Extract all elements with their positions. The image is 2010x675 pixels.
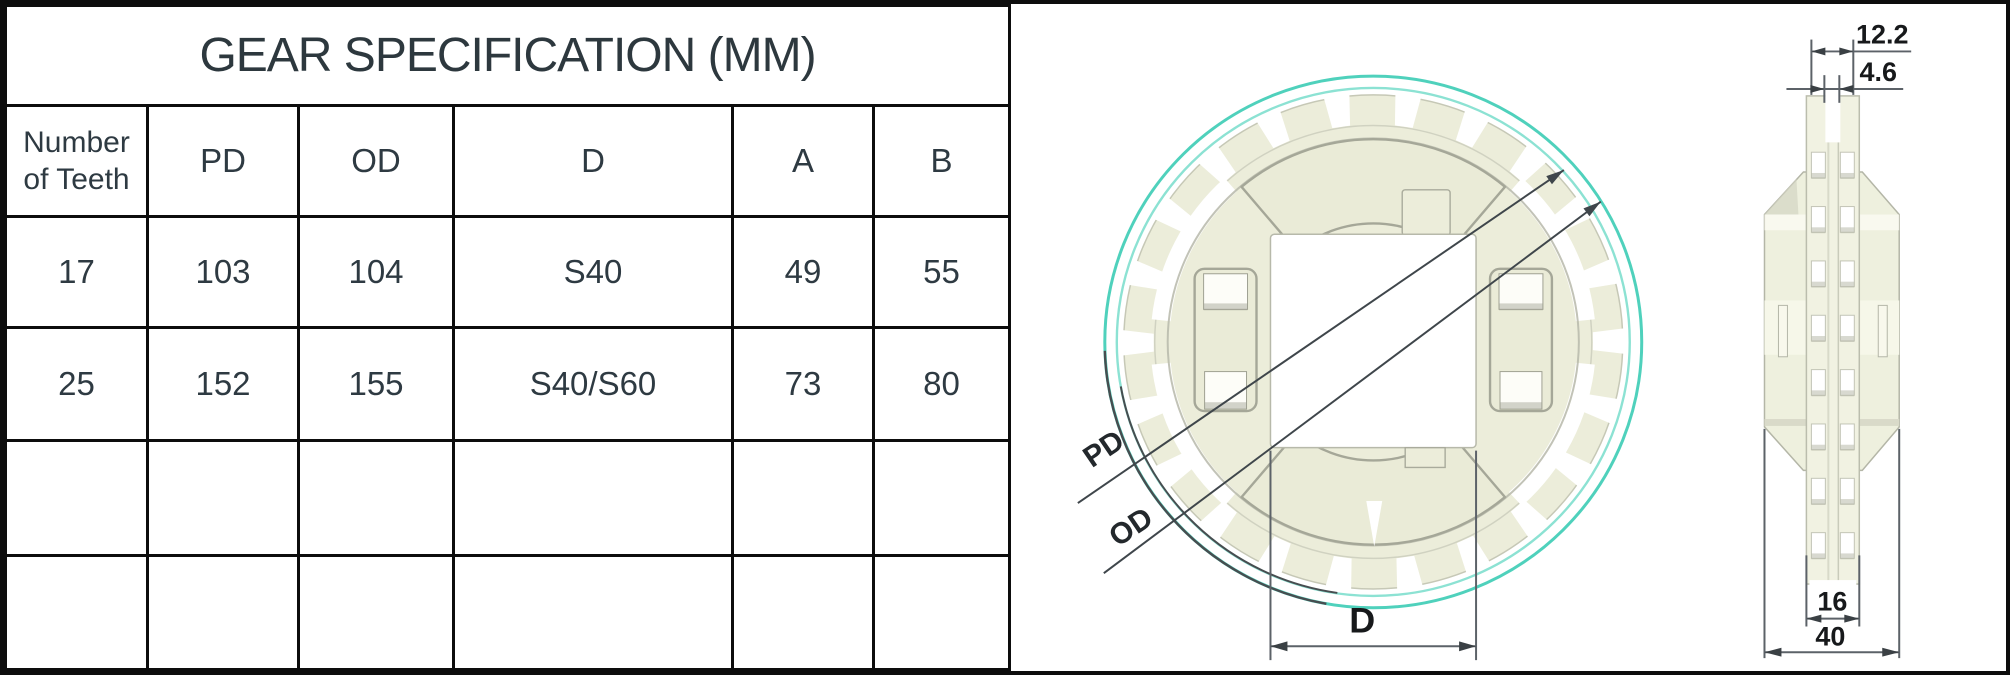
table-cell [454, 441, 733, 556]
table-cell [6, 441, 148, 556]
table-header-row: Number of Teeth PD OD D A B [6, 106, 1010, 217]
table-cell: 155 [299, 328, 454, 441]
table-cell [148, 441, 299, 556]
dim-4-6-label: 4.6 [1860, 57, 1897, 87]
hub-chamfer-shade [1764, 179, 1798, 215]
table-cell [874, 441, 1010, 556]
col-header-pd: PD [148, 106, 299, 217]
table-cell: 152 [148, 328, 299, 441]
table-cell [733, 556, 874, 670]
table-cell: 55 [874, 217, 1010, 328]
table-cell [733, 441, 874, 556]
gear-spec-table: GEAR SPECIFICATION (MM) Number of Teeth … [4, 4, 1011, 671]
dim-40: 40 [1764, 621, 1899, 656]
table-cell: 25 [6, 328, 148, 441]
table-cell [454, 556, 733, 670]
table-title: GEAR SPECIFICATION (MM) [6, 6, 1010, 106]
table-cell: 49 [733, 217, 874, 328]
prong-gap [1825, 94, 1840, 142]
table-cell [148, 556, 299, 670]
pd-label: PD [1077, 424, 1130, 474]
table-row [6, 556, 1010, 670]
table-row [6, 441, 1010, 556]
table-cell [299, 441, 454, 556]
table-cell [299, 556, 454, 670]
table-cell: S40/S60 [454, 328, 733, 441]
sprocket-side-view: 12.2 4.6 16 4 [1764, 20, 1911, 659]
bore-boss [1402, 190, 1450, 235]
dim-16-label: 16 [1817, 587, 1847, 617]
od-label: OD [1103, 501, 1159, 553]
dim-40-label: 40 [1815, 621, 1845, 651]
dim-12-2-label: 12.2 [1856, 20, 1908, 50]
table-title-row: GEAR SPECIFICATION (MM) [6, 6, 1010, 106]
table-cell: 73 [733, 328, 874, 441]
square-bore [1270, 234, 1476, 447]
left-clip-pocket [1195, 269, 1257, 411]
table-cell [6, 556, 148, 670]
table-cell: 104 [299, 217, 454, 328]
table-cell: S40 [454, 217, 733, 328]
bore-tab [1405, 448, 1445, 468]
right-clip-pocket [1490, 269, 1552, 411]
sprocket-drawing: PD OD D [1008, 4, 2006, 671]
table-cell: 17 [6, 217, 148, 328]
col-header-od: OD [299, 106, 454, 217]
col-header-b: B [874, 106, 1010, 217]
hub-side-slot [1878, 305, 1887, 356]
table-cell: 103 [148, 217, 299, 328]
table-cell [874, 556, 1010, 670]
sprocket-drawing-panel: PD OD D [1008, 4, 2006, 671]
hub-side-slot [1778, 305, 1787, 356]
col-header-number-of-teeth: Number of Teeth [6, 106, 148, 217]
table-cell: 80 [874, 328, 1010, 441]
gear-spec-sheet: GEAR SPECIFICATION (MM) Number of Teeth … [0, 0, 2010, 675]
table-row: 17 103 104 S40 49 55 [6, 217, 1010, 328]
col-header-a: A [733, 106, 874, 217]
sprocket-front-view: PD OD D [1077, 76, 1642, 660]
d-dim-label: D [1349, 601, 1375, 641]
col-header-d: D [454, 106, 733, 217]
table-row: 25 152 155 S40/S60 73 80 [6, 328, 1010, 441]
